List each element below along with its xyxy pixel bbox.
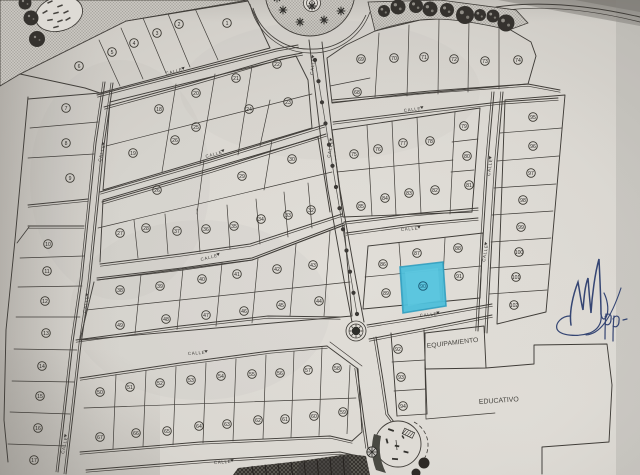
svg-text:34: 34 [258,217,264,223]
svg-text:99: 99 [518,225,524,231]
svg-text:98: 98 [520,198,526,204]
svg-text:93: 93 [398,375,404,381]
svg-text:32: 32 [308,208,314,214]
svg-text:6: 6 [78,64,81,70]
svg-text:66: 66 [133,431,139,437]
svg-text:86: 86 [380,262,386,268]
svg-text:15: 15 [37,394,43,400]
svg-text:95: 95 [530,115,536,121]
svg-text:62: 62 [255,418,261,424]
svg-text:16: 16 [35,426,41,432]
svg-text:82: 82 [432,188,438,194]
svg-text:97: 97 [528,171,534,177]
svg-text:63: 63 [224,422,230,428]
svg-text:60: 60 [311,414,317,420]
svg-text:101: 101 [512,275,521,281]
svg-text:1: 1 [226,21,229,27]
svg-text:57: 57 [305,368,311,374]
svg-text:4: 4 [133,41,136,47]
svg-text:85: 85 [358,204,364,210]
svg-text:2: 2 [178,22,181,28]
svg-text:11: 11 [44,269,49,275]
svg-text:91: 91 [456,274,462,280]
svg-text:59: 59 [340,410,346,416]
svg-text:13: 13 [43,331,49,337]
svg-text:64: 64 [196,424,202,430]
svg-text:65: 65 [164,429,170,435]
svg-text:61: 61 [282,417,288,423]
svg-text:33: 33 [285,213,291,219]
svg-text:3: 3 [156,31,159,37]
svg-text:79: 79 [461,124,467,130]
svg-text:81: 81 [466,183,472,189]
svg-text:29: 29 [239,174,245,180]
svg-text:100: 100 [515,250,524,256]
svg-text:67: 67 [97,435,103,441]
svg-text:17: 17 [31,458,37,464]
svg-text:80: 80 [464,154,470,160]
svg-text:89: 89 [383,291,389,297]
svg-text:12: 12 [42,299,48,305]
svg-text:84: 84 [382,196,388,202]
svg-text:73: 73 [482,59,488,65]
svg-text:74: 74 [515,58,521,64]
svg-text:83: 83 [406,191,412,197]
svg-text:87: 87 [414,251,420,257]
svg-text:5: 5 [111,50,114,56]
svg-text:14: 14 [39,364,45,370]
svg-text:96: 96 [530,144,536,150]
svg-text:90: 90 [420,284,426,290]
svg-text:58: 58 [334,366,340,372]
svg-text:102: 102 [510,303,519,309]
svg-text:92: 92 [395,347,401,353]
svg-text:88: 88 [455,246,461,252]
svg-text:50: 50 [97,390,103,396]
svg-text:94: 94 [400,404,406,410]
